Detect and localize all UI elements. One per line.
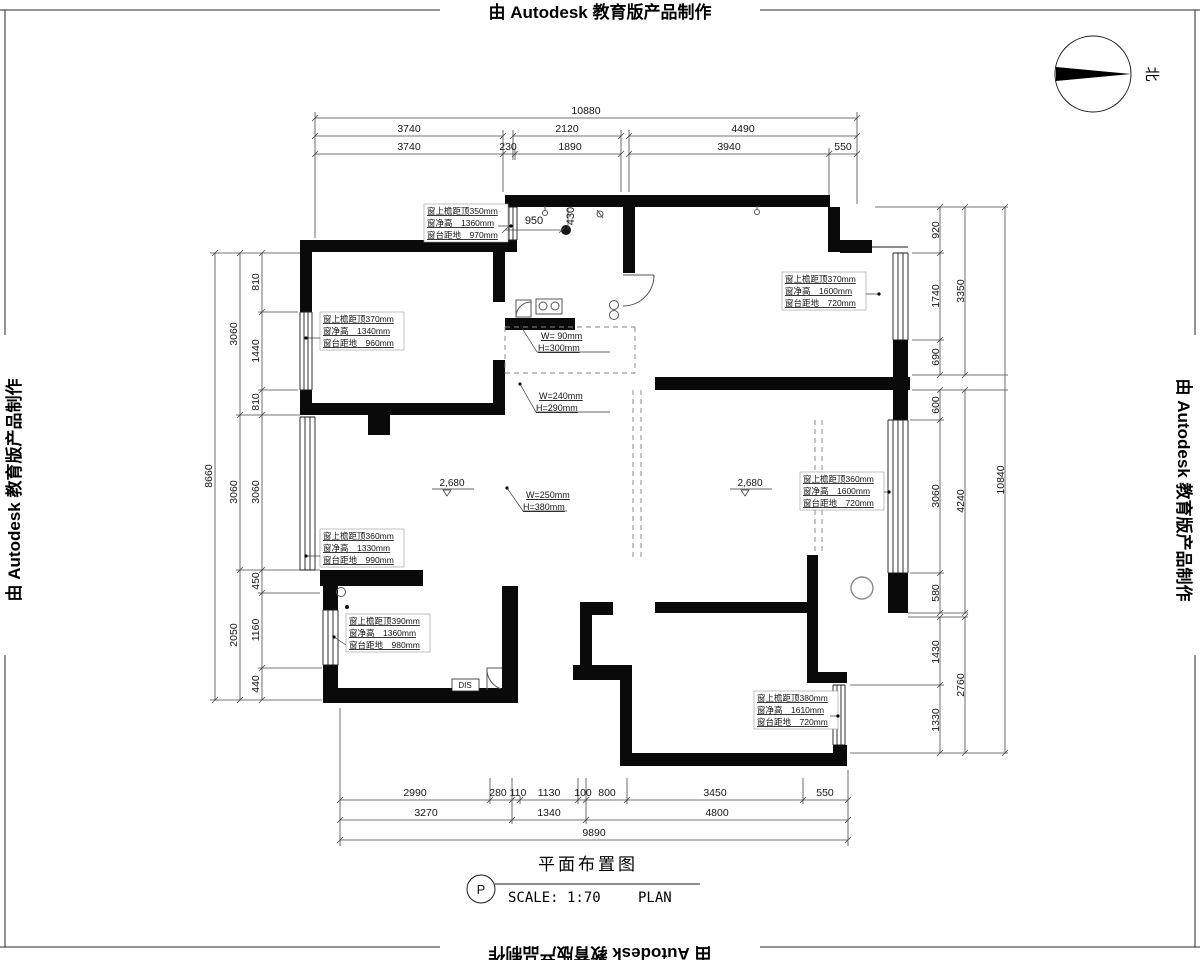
dim-left: 2050 [228, 623, 240, 647]
dim-950: 950 [525, 215, 543, 227]
dim-left: 3060 [228, 480, 240, 504]
dim-bottom: 3450 [703, 787, 727, 799]
column-circle [851, 577, 873, 599]
svg-text:窗台距地 960mm: 窗台距地 960mm [323, 338, 394, 348]
dim-bottom: 100 [574, 787, 592, 799]
svg-text:窗净高 1600mm: 窗净高 1600mm [785, 286, 852, 296]
beam-note-2: W=240mm H=290mm [518, 382, 610, 413]
title-block: 平面布置图 P SCALE: 1:70 PLAN [467, 855, 700, 906]
sheet-scale: SCALE: 1:70 [508, 890, 601, 906]
floor-plan-sheet: 由 Autodesk 教育版产品制作 由 Autodesk 教育版产品制作 由 … [0, 0, 1200, 960]
sheet-title: 平面布置图 [538, 855, 638, 874]
svg-text:窗净高 1360mm: 窗净高 1360mm [427, 218, 494, 228]
dim-top: 3940 [717, 141, 741, 153]
sink-bowl-icon [610, 301, 619, 310]
svg-text:H=380mm: H=380mm [523, 502, 565, 512]
svg-text:W=240mm: W=240mm [539, 391, 583, 401]
dim-top: 2120 [555, 123, 579, 135]
shower-corner [487, 668, 502, 690]
dim-right: 920 [930, 221, 942, 239]
window-note-6: 窗上檐距顶390mm 窗净高 1360mm 窗台距地 980mm [332, 614, 430, 652]
svg-text:窗净高 1610mm: 窗净高 1610mm [757, 705, 824, 715]
dim-bottom: 4800 [705, 807, 729, 819]
window-living-west [300, 417, 315, 570]
dim-right: 2760 [955, 673, 967, 697]
dim-right: 1740 [930, 284, 942, 308]
dim-right: 580 [930, 584, 942, 602]
svg-text:窗台距地 720mm: 窗台距地 720mm [757, 717, 828, 727]
stamp-bottom: 由 Autodesk 教育版产品制作 [489, 944, 712, 960]
sheet-type: PLAN [638, 890, 672, 906]
dim-left: 1160 [250, 619, 262, 642]
drawing-frame [0, 10, 1200, 947]
svg-text:H=290mm: H=290mm [536, 403, 578, 413]
north-label: 北 [1143, 66, 1160, 81]
dim-left: 810 [250, 273, 262, 291]
svg-text:窗上檐距顶370mm: 窗上檐距顶370mm [323, 314, 394, 324]
svg-text:窗净高 1360mm: 窗净高 1360mm [349, 628, 416, 638]
dimensions-top: 10880 3740 2120 4490 3740 230 1890 3940 … [312, 105, 860, 238]
dim-left: 3060 [250, 480, 262, 504]
svg-text:窗上檐距顶360mm: 窗上檐距顶360mm [803, 474, 874, 484]
svg-text:窗净高 1330mm: 窗净高 1330mm [323, 543, 390, 553]
dim-bottom: 280 [489, 787, 507, 799]
svg-text:窗台距地 970mm: 窗台距地 970mm [427, 230, 498, 240]
svg-text:窗净高 1600mm: 窗净高 1600mm [803, 486, 870, 496]
stamp-top: 由 Autodesk 教育版产品制作 [489, 2, 712, 22]
window-bedroom1-west [300, 312, 312, 390]
dim-bottom: 110 [510, 787, 527, 799]
level-marker-dining: 2,680 [730, 478, 772, 496]
svg-text:窗上檐距顶370mm: 窗上檐距顶370mm [785, 274, 856, 284]
plot-stamps: 由 Autodesk 教育版产品制作 由 Autodesk 教育版产品制作 由 … [3, 1, 1196, 960]
dim-bottom: 3270 [414, 807, 438, 819]
svg-text:窗台距地 720mm: 窗台距地 720mm [803, 498, 874, 508]
window-note-7: 窗上檐距顶380mm 窗净高 1610mm 窗台距地 720mm [754, 691, 840, 729]
svg-text:2,680: 2,680 [737, 478, 762, 489]
svg-text:窗上檐距顶390mm: 窗上檐距顶390mm [349, 616, 420, 626]
dim-right: 4240 [955, 489, 967, 513]
level-marker-living: 2,680 [432, 478, 474, 496]
north-compass: 北 [1055, 36, 1160, 112]
dim-right: 690 [930, 348, 942, 366]
sink-bowl-icon [610, 311, 619, 320]
dim-bottom: 800 [598, 787, 616, 799]
stove-outline [536, 299, 562, 314]
beam-notes: W= 90mm H=300mm W=240mm H=290mm W=250mm … [505, 323, 610, 512]
dim-bottom-overall: 9890 [582, 827, 606, 839]
floor-plan-drawing: 由 Autodesk 教育版产品制作 由 Autodesk 教育版产品制作 由 … [0, 0, 1200, 960]
stamp-left: 由 Autodesk 教育版产品制作 [4, 379, 24, 602]
dim-top: 3740 [397, 123, 421, 135]
svg-text:窗台距地 990mm: 窗台距地 990mm [323, 555, 394, 565]
window-bedroom2-west [323, 610, 338, 665]
title-tag: P [477, 882, 486, 897]
door-bedroom1 [516, 300, 531, 317]
level-markers: 2,680 2,680 [432, 478, 772, 496]
dim-top: 550 [834, 141, 852, 153]
dim-left: 450 [250, 572, 262, 590]
svg-text:W= 90mm: W= 90mm [541, 331, 582, 341]
window-notes: 窗上檐距顶350mm 窗净高 1360mm 窗台距地 970mm 窗上檐距顶37… [304, 204, 890, 729]
window-note-5: 窗上檐距顶360mm 窗净高 1330mm 窗台距地 990mm [304, 529, 404, 567]
svg-text:窗台距地 980mm: 窗台距地 980mm [349, 640, 420, 650]
dim-left: 440 [250, 675, 262, 693]
dashed-lines [505, 327, 822, 560]
dim-right: 600 [930, 396, 942, 414]
dim-top: 4490 [731, 123, 755, 135]
dim-right: 3060 [930, 484, 942, 508]
svg-text:W=250mm: W=250mm [526, 490, 570, 500]
window-note-3: 窗上檐距顶370mm 窗净高 1600mm 窗台距地 720mm [782, 272, 881, 310]
svg-text:2,680: 2,680 [439, 478, 464, 489]
dim-430: 430 [565, 207, 577, 225]
svg-text:窗上檐距顶360mm: 窗上檐距顶360mm [323, 531, 394, 541]
window-note-4: 窗上檐距顶360mm 窗净高 1600mm 窗台距地 720mm [800, 472, 891, 510]
svg-text:窗上檐距顶350mm: 窗上檐距顶350mm [427, 206, 498, 216]
svg-text:窗净高 1340mm: 窗净高 1340mm [323, 326, 390, 336]
dim-top: 3740 [397, 141, 421, 153]
north-arrow-icon [1056, 67, 1131, 81]
faucet-icon [543, 211, 548, 216]
svg-text:DIS: DIS [458, 681, 471, 690]
dim-bottom: 1130 [538, 787, 561, 799]
dim-bottom: 550 [816, 787, 834, 799]
door-entry [623, 275, 654, 306]
faucet-icon [755, 210, 760, 215]
stove-burner-icon [551, 302, 559, 310]
dim-top: 1890 [558, 141, 582, 153]
drain-dot [345, 605, 349, 609]
beam-note-3: W=250mm H=380mm [505, 486, 569, 512]
svg-text:H=300mm: H=300mm [538, 343, 580, 353]
dim-right: 1430 [930, 640, 942, 664]
dim-right: 1330 [930, 708, 942, 732]
dim-bottom: 1340 [537, 807, 561, 819]
stamp-right: 由 Autodesk 教育版产品制作 [1174, 379, 1194, 602]
dim-left: 810 [250, 393, 262, 411]
svg-text:窗上檐距顶380mm: 窗上檐距顶380mm [757, 693, 828, 703]
dim-left: 3060 [228, 322, 240, 346]
window-topright-east [872, 247, 908, 340]
dim-top-overall: 10880 [571, 105, 600, 117]
dim-right-overall: 10840 [995, 465, 1007, 494]
dim-right: 3350 [955, 279, 967, 303]
dim-left: 1440 [250, 339, 262, 363]
dis-label: DIS [452, 679, 479, 691]
window-midright-east [888, 420, 908, 573]
window-note-1: 窗上檐距顶350mm 窗净高 1360mm 窗台距地 970mm [424, 204, 513, 242]
svg-text:窗台距地 720mm: 窗台距地 720mm [785, 298, 856, 308]
dim-left-overall: 8660 [203, 464, 215, 488]
stove-burner-icon [539, 302, 547, 310]
dim-top: 230 [499, 141, 517, 153]
dim-bottom: 2990 [403, 787, 427, 799]
window-note-2: 窗上檐距顶370mm 窗净高 1340mm 窗台距地 960mm [304, 312, 404, 350]
